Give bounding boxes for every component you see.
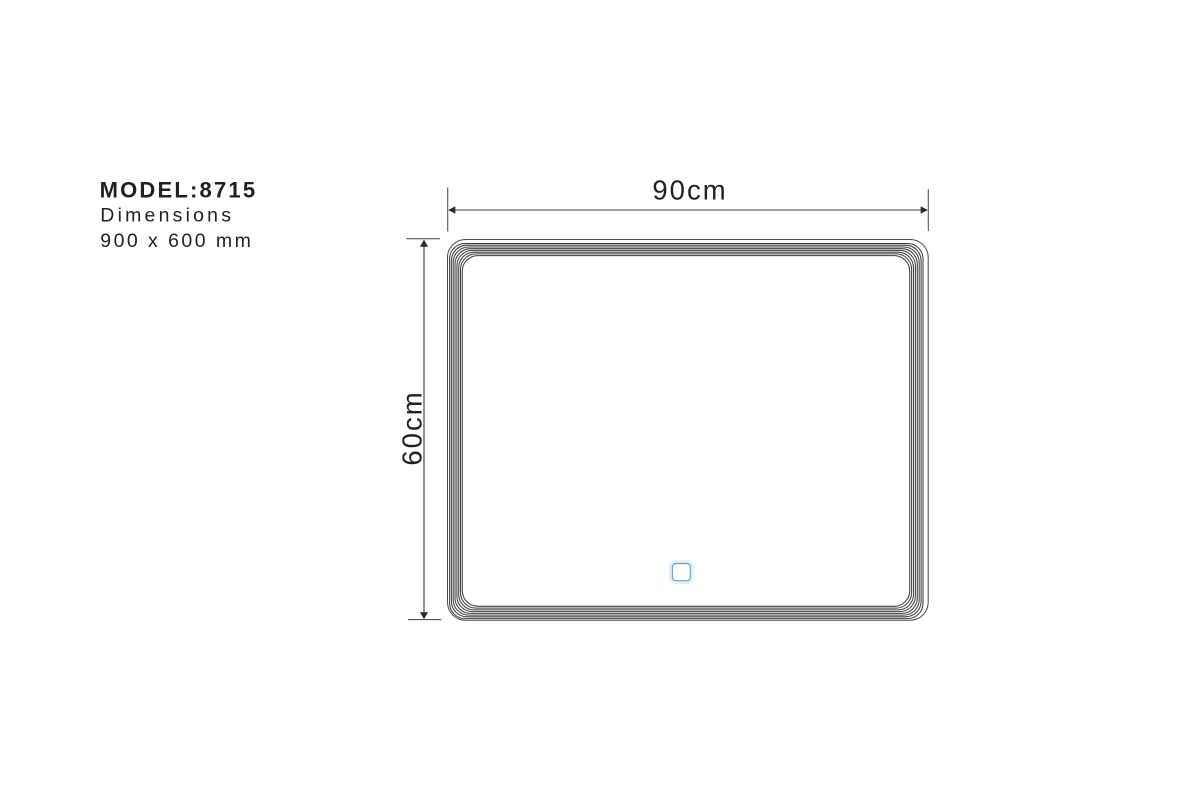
svg-text:MODEL:8715: MODEL:8715 (100, 177, 258, 202)
svg-text:Dimensions: Dimensions (100, 205, 234, 227)
svg-text:90cm: 90cm (652, 174, 727, 205)
svg-text:60cm: 60cm (397, 390, 428, 465)
svg-text:900 x 600 mm: 900 x 600 mm (100, 230, 253, 252)
